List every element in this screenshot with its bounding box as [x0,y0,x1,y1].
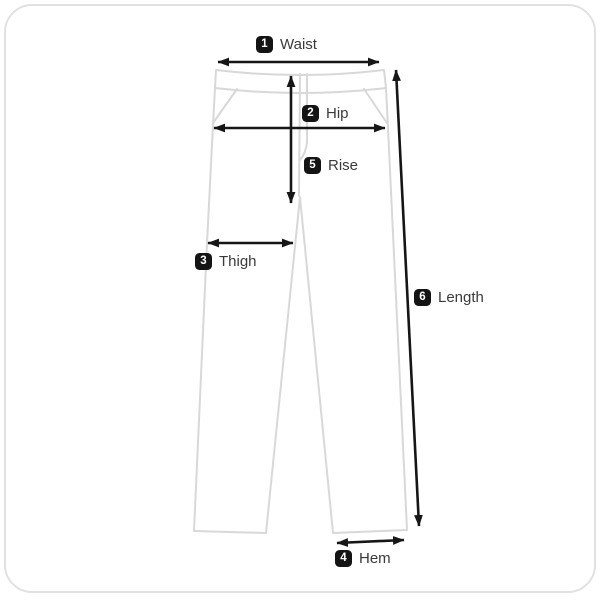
measurement-label-length: 6 Length [414,289,484,306]
waist-number-badge: 1 [256,36,273,53]
measurement-label-hem: 4 Hem [335,550,391,567]
hem-arrow [337,540,404,543]
fly-left-line [299,74,300,196]
measurement-label-rise: 5 Rise [304,157,358,174]
measurement-label-waist: 1 Waist [256,36,317,53]
thigh-label-text: Thigh [219,253,257,270]
waist-label-text: Waist [280,36,317,53]
thigh-number-badge: 3 [195,253,212,270]
rise-label-text: Rise [328,157,358,174]
length-number-badge: 6 [414,289,431,306]
pants-outline [194,70,407,533]
hip-label-text: Hip [326,105,349,122]
measurement-diagram: 1 Waist 2 Hip 5 Rise 3 Thigh 6 Length 4 … [0,0,600,600]
length-label-text: Length [438,289,484,306]
hip-number-badge: 2 [302,105,319,122]
hem-label-text: Hem [359,550,391,567]
pants-measurement-svg [0,0,600,600]
hem-number-badge: 4 [335,550,352,567]
rise-number-badge: 5 [304,157,321,174]
measurement-label-hip: 2 Hip [302,105,349,122]
measurement-label-thigh: 3 Thigh [195,253,257,270]
